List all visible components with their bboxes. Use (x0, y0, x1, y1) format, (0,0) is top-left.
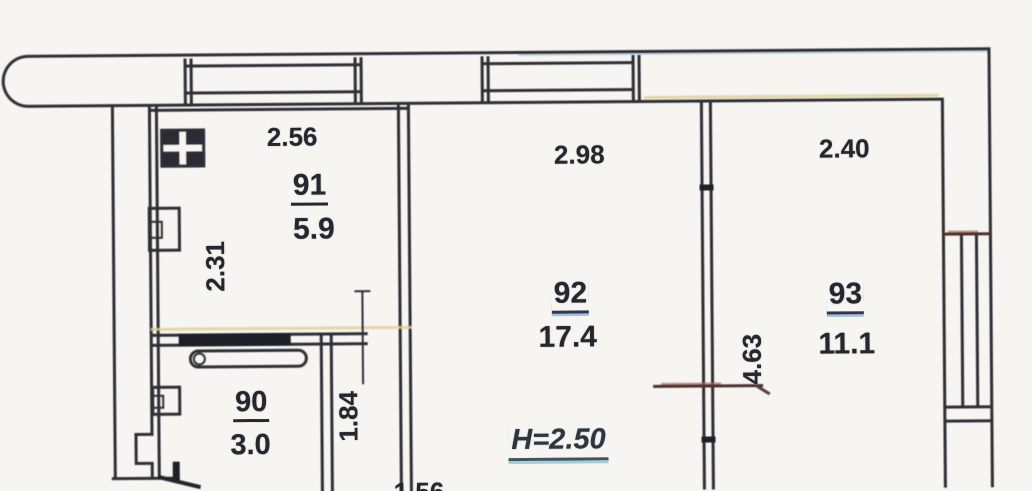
room-91-number: 91 (291, 168, 329, 205)
room-90-number: 90 (233, 386, 270, 422)
window-right-sill-inner (944, 405, 992, 408)
ceiling-height-label: H=2.50 (508, 423, 609, 461)
wall-tick (702, 436, 716, 442)
room-92-number: 92 (552, 276, 590, 313)
window-top-center-glazing-icon (484, 61, 635, 65)
room-93-area-label: 11.1 (818, 327, 875, 360)
window-top-left-glazing-icon (187, 63, 360, 67)
wall-room92-room93 (700, 102, 706, 490)
dimension-line-1-84 (361, 290, 364, 384)
scan-tinge-red (948, 230, 978, 232)
room-92-area-label: 17.4 (538, 320, 597, 353)
apartment-floorplan: 2.56 91 5.9 2.98 92 17.4 2.40 93 11.1 90… (0, 0, 1032, 491)
wall-linework (0, 0, 1032, 491)
ceiling-height-value: H=2.50 (508, 423, 609, 461)
wall-room90-right (320, 335, 324, 491)
sink-tap-icon (148, 221, 163, 239)
dim-room91-depth-label: 2.31 (200, 221, 231, 311)
room-93-number-label: 93 (827, 277, 865, 314)
window-right-glazing-icon (975, 235, 979, 407)
wall-jog (151, 462, 154, 480)
dimension-tick-1-84 (354, 290, 370, 292)
room-90-number-label: 90 (233, 386, 270, 422)
window-top-left-glazing-icon (187, 90, 360, 94)
wall-right-inner (941, 98, 947, 488)
wall-jog (134, 433, 137, 465)
window-top-center-glazing-icon (484, 88, 635, 92)
room-92-number-label: 92 (552, 276, 590, 313)
window-top-center-divider-icon (638, 55, 641, 102)
window-top-left-divider-icon (360, 57, 363, 104)
wall-left-outer (111, 106, 117, 480)
room-91-number-label: 91 (291, 168, 329, 205)
wall-top-inner (39, 98, 944, 108)
wall-room92-room93-inner (709, 101, 715, 489)
room-91-area-label: 5.9 (293, 212, 335, 245)
wall-room91-right-inner (407, 104, 413, 491)
window-right-sill-bottom (944, 419, 992, 422)
room90-door-threshold (179, 333, 291, 347)
bathtub-drain-icon (193, 352, 206, 365)
dim-room92-width-label: 2.98 (554, 139, 605, 169)
dim-hall-depth-label: 1.84 (333, 371, 364, 461)
dim-room93-width-label: 2.40 (819, 133, 870, 163)
wall-room91-right (397, 104, 403, 491)
floorplan-scan: 2.56 91 5.9 2.98 92 17.4 2.40 93 11.1 90… (0, 0, 1032, 491)
window-right-glazing-icon (960, 235, 964, 407)
stove-icon (160, 128, 205, 167)
room-90-area-label: 3.0 (230, 429, 271, 461)
dim-room93-depth-label: 4.63 (737, 314, 768, 404)
scan-tinge-yellow-wall (151, 326, 412, 331)
window-right-sill-top (943, 232, 991, 235)
washbasin-tap-icon (151, 395, 164, 409)
dim-room91-width-label: 2.56 (267, 122, 318, 152)
balcony-railing-rounded-end (1, 55, 53, 108)
wall-room91-top (148, 107, 410, 112)
room-93-number: 93 (827, 277, 865, 314)
dim-bottom-width-label: 1.56 (394, 477, 445, 491)
wall-tick (700, 184, 714, 190)
bathtub-icon (189, 349, 308, 369)
